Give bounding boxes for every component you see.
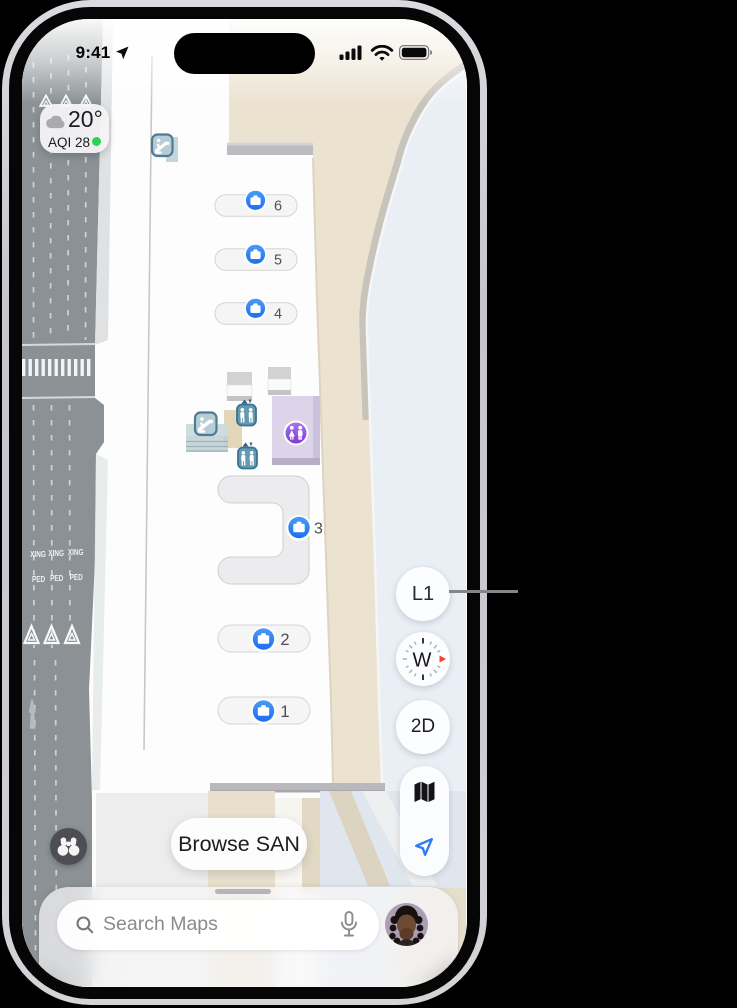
svg-text:PED: PED: [70, 572, 83, 582]
svg-text:XING: XING: [68, 547, 84, 557]
svg-text:5: 5: [274, 253, 282, 269]
svg-text:W: W: [413, 649, 432, 671]
svg-text:2: 2: [280, 631, 289, 649]
svg-text:XING: XING: [48, 548, 64, 558]
svg-text:1: 1: [280, 703, 289, 721]
svg-text:4: 4: [274, 307, 282, 323]
svg-text:6: 6: [274, 199, 282, 215]
svg-text:3: 3: [314, 521, 323, 538]
svg-text:PED: PED: [50, 573, 63, 583]
svg-text:PED: PED: [32, 574, 45, 584]
svg-text:XING: XING: [30, 549, 46, 559]
